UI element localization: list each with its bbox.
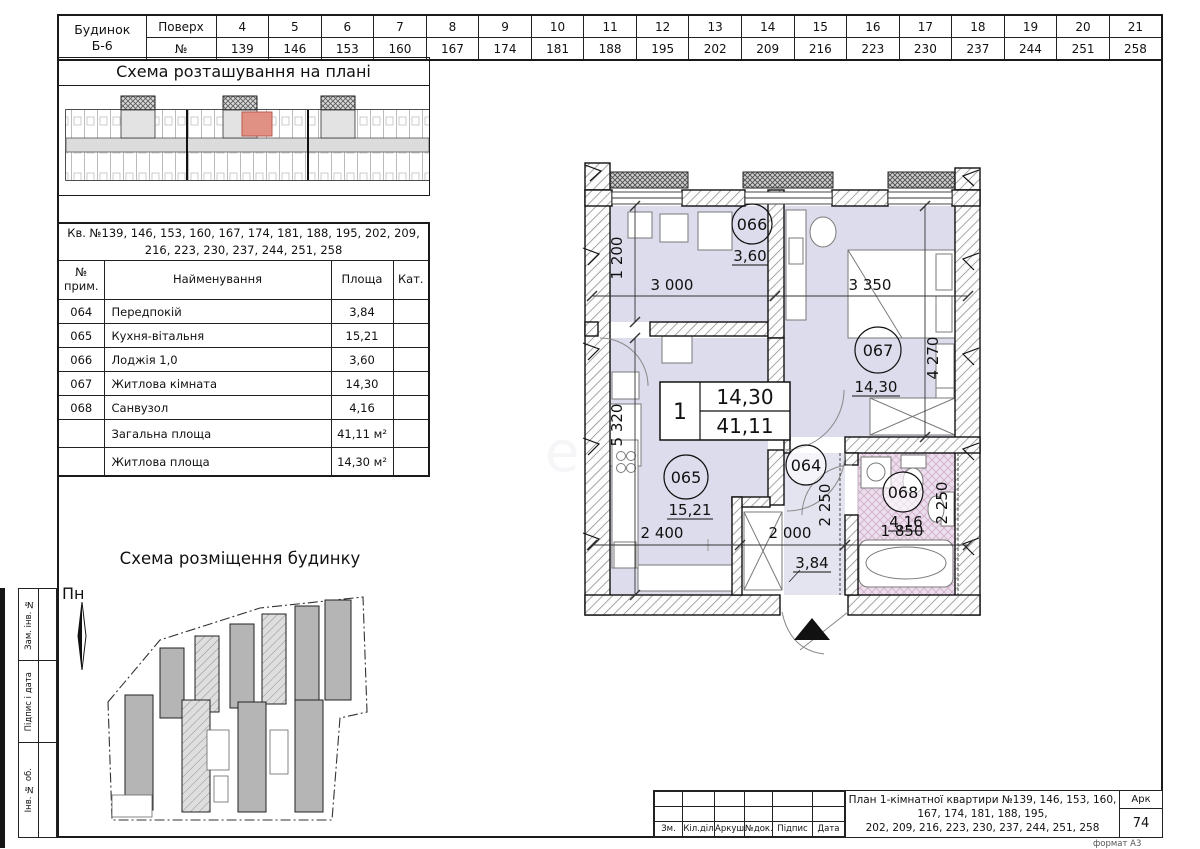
sheet-number-cell: Арк 74 <box>1120 791 1162 837</box>
drawing-title: План 1-кімнатної квартири №139, 146, 153… <box>845 791 1120 837</box>
area-table-header: №прим. Найменування Площа Кат. <box>58 261 429 300</box>
floors-apartments-table: БудинокБ-6 Поверх 4567891011121314151617… <box>57 14 1163 61</box>
margin-cell: Підпис і дата <box>19 661 56 743</box>
north-arrow <box>78 602 86 670</box>
sheet-number: 74 <box>1120 809 1162 837</box>
room-area-068: 4,16 <box>889 513 922 531</box>
site-scheme-drawing <box>57 580 387 838</box>
location-scheme-title: Схема розташування на плані <box>58 58 429 86</box>
building-strip <box>66 96 429 180</box>
drawing-sheet: { "top_table": { "building_line1": "Буди… <box>0 0 1200 848</box>
location-scheme-drawing <box>58 86 429 194</box>
dim-bath-height: 2 250 <box>933 482 951 525</box>
floor-row: БудинокБ-6 Поверх 4567891011121314151617… <box>58 15 1162 38</box>
dim-kitchen-width: 2 400 <box>641 524 684 542</box>
dim-bedroom-height: 4 270 <box>924 337 942 380</box>
dim-loggia-width: 3 000 <box>651 276 694 294</box>
margin-cell: Зам. інв. № <box>19 589 56 661</box>
room-id-066: 066 <box>737 215 768 234</box>
room-area-067: 14,30 <box>855 378 898 396</box>
apartment-total-area: 41,11 <box>716 414 773 438</box>
room-area-064: 3,84 <box>795 554 828 572</box>
room-id-068: 068 <box>888 483 919 502</box>
table-row: 068Санвузол4,16 <box>58 396 429 420</box>
room-id-065: 065 <box>671 468 702 487</box>
room-id-064: 064 <box>791 456 822 475</box>
floor-plan: 3 000 3 350 1 200 5 320 4 270 2 400 2 00… <box>575 160 1000 660</box>
apartment-number: 1 <box>673 400 687 425</box>
room-area-066: 3,60 <box>733 247 766 265</box>
area-table-caption: Кв. №139, 146, 153, 160, 167, 174, 181, … <box>58 223 429 261</box>
table-row: 066Лоджія 1,03,60 <box>58 348 429 372</box>
sheet-label: Арк <box>1120 791 1162 809</box>
location-scheme-box: Схема розташування на плані <box>57 57 430 196</box>
table-row: 065Кухня-вітальня15,21 <box>58 324 429 348</box>
balcony-guards <box>598 172 976 188</box>
title-block: Зм.Кіл.діл Аркуш№док. ПідписДата План 1-… <box>653 790 1163 838</box>
apartment-living-area: 14,30 <box>716 385 773 409</box>
site-buildings <box>112 600 351 817</box>
entry-arrow <box>794 618 830 640</box>
margin-stamp-column: Зам. інв. № Підпис і дата Інв. № об. <box>18 588 57 838</box>
revision-table: Зм.Кіл.діл Аркуш№док. ПідписДата <box>654 791 845 837</box>
dim-kitchen-height: 5 320 <box>608 404 626 447</box>
area-table: Кв. №139, 146, 153, 160, 167, 174, 181, … <box>57 222 430 477</box>
building-label: БудинокБ-6 <box>58 15 146 60</box>
scan-edge <box>0 588 5 848</box>
living-area-row: Житлова площа14,30 м² <box>58 448 429 477</box>
dim-hall-width: 2 000 <box>769 524 812 542</box>
room-area-065: 15,21 <box>669 501 712 519</box>
total-area-row: Загальна площа41,11 м² <box>58 420 429 448</box>
wall-bottom-right <box>848 595 980 615</box>
wall-bottom-left <box>585 595 780 615</box>
dim-bedroom-width: 3 350 <box>849 276 892 294</box>
table-row: 067Житлова кімната14,30 <box>58 372 429 396</box>
room-id-067: 067 <box>863 341 894 360</box>
highlighted-apartment <box>242 112 272 136</box>
dim-loggia-height: 1 200 <box>608 237 626 280</box>
apartment-info-box: 1 14,30 41,11 <box>660 382 790 440</box>
site-scheme-title: Схема розміщення будинку <box>85 549 395 568</box>
table-row: 064Передпокій3,84 <box>58 300 429 324</box>
floor-row-label: Поверх <box>146 15 216 38</box>
windows <box>612 192 952 204</box>
dim-hall-height: 2 250 <box>816 484 834 527</box>
margin-cell: Інв. № об. <box>19 743 56 837</box>
